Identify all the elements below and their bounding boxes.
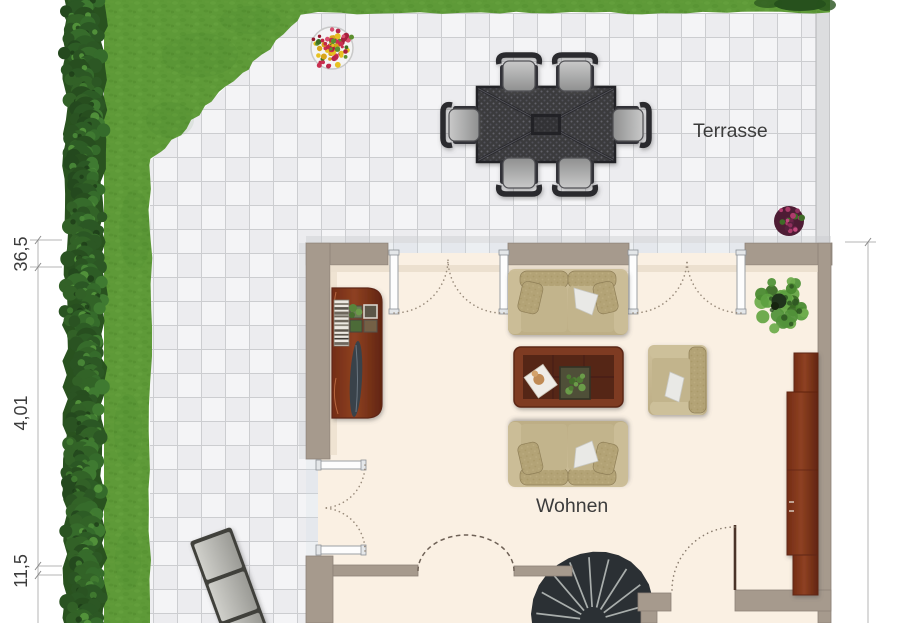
svg-text:4,01: 4,01 <box>11 395 31 430</box>
svg-text:Wohnen: Wohnen <box>536 495 608 517</box>
svg-text:Terrasse: Terrasse <box>693 120 768 142</box>
svg-text:36,5: 36,5 <box>11 236 31 271</box>
svg-text:11,5: 11,5 <box>11 554 31 588</box>
